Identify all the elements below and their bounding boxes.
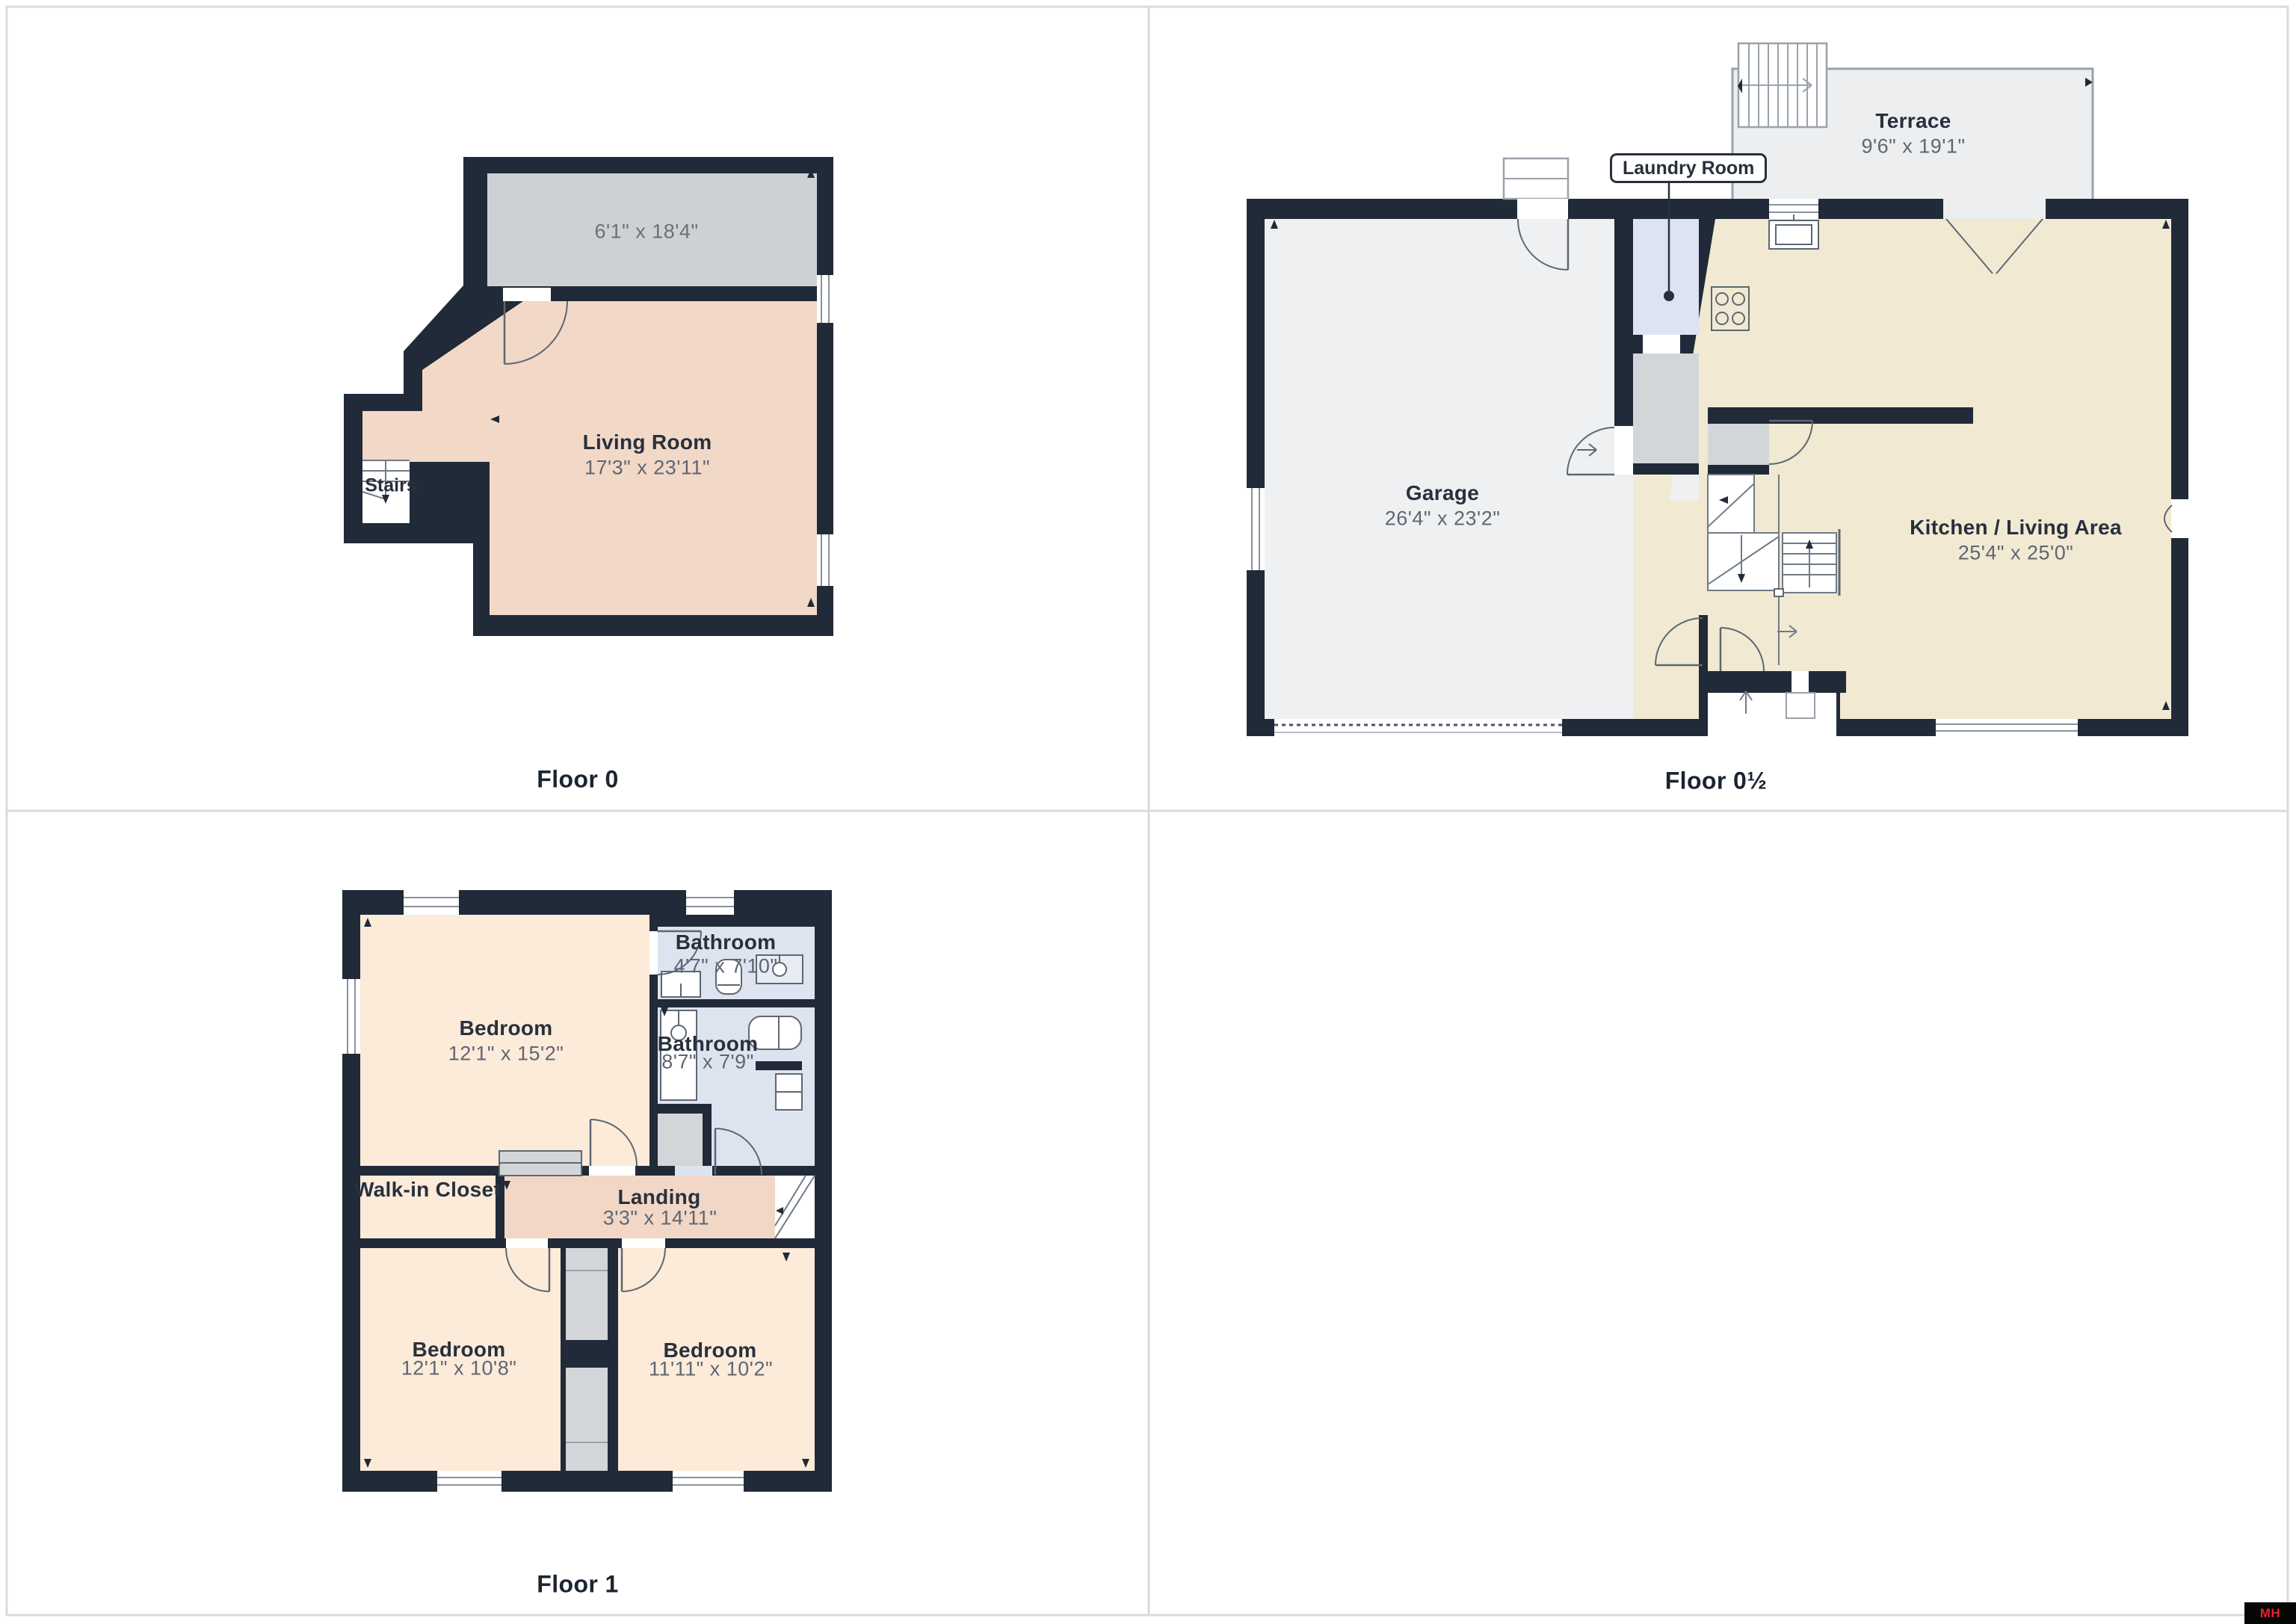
terrace-dims: 9'6" x 19'1" (1861, 135, 1965, 158)
kitchen-lower-left-floor (1633, 501, 1699, 719)
garage-window (1247, 488, 1265, 570)
shaft-divider-wall (561, 1340, 618, 1368)
kitchen-living-name: Kitchen / Living Area (1910, 516, 2122, 540)
storage-floor (658, 1114, 703, 1166)
laundry-room-callout: Laundry Room (1610, 153, 1767, 183)
bedroom3-dims: 11'11" x 10'2" (649, 1358, 773, 1381)
garage-name: Garage (1406, 481, 1479, 505)
bathroom1-dims: 4'7" x 7'10" (673, 955, 777, 978)
vestibule2-bottom-wall (1708, 465, 1769, 475)
vestibule2-floor (1708, 424, 1769, 465)
landing-name: Landing (618, 1185, 701, 1209)
stove-icon (1712, 287, 1749, 330)
floor0half-title: Floor 0½ (1665, 768, 1768, 795)
garage-door (1274, 719, 1562, 736)
wardrobe-cabinet (499, 1151, 581, 1176)
living-room-dims: 17'3" x 23'11" (584, 457, 710, 480)
vestibule-floor (1633, 353, 1699, 463)
floor1-title: Floor 1 (537, 1571, 618, 1599)
landing-dims: 3'3" x 14'11" (603, 1207, 717, 1230)
bedroom1-name: Bedroom (460, 1016, 553, 1040)
laundry-floor (1633, 219, 1699, 335)
bedroom2-dims: 12'1" x 10'8" (401, 1357, 517, 1380)
floor1-stair-void (775, 1176, 815, 1238)
terrace-stairs (1738, 43, 1827, 127)
floor0half-plan (1247, 43, 2188, 736)
laundry-door-gap (1643, 335, 1680, 353)
floorplan-drawing (0, 0, 2296, 1624)
kitchen-living-dims: 25'4" x 25'0" (1958, 542, 2074, 565)
bathroom2-lobby-floor (712, 1104, 815, 1166)
living-room-name: Living Room (583, 430, 712, 454)
terrace-name: Terrace (1875, 109, 1951, 133)
kitchen-interior-wall (1708, 407, 1973, 424)
walkin-closet-name: Walk-in Closet (354, 1178, 501, 1202)
mls-logo: MH MLS (2244, 1602, 2296, 1624)
bathroom1-name: Bathroom (676, 930, 777, 954)
bedroom1-floor (360, 915, 649, 1166)
floor0-plan (344, 157, 833, 636)
bathroom2-dims: 8'7" x 7'9" (661, 1051, 754, 1074)
floor0-title: Floor 0 (537, 766, 618, 794)
floorplan-page: 6'1" x 18'4" Living Room 17'3" x 23'11" … (0, 0, 2296, 1624)
garage-dims: 26'4" x 23'2" (1385, 507, 1501, 531)
stairs-label: Stairs (365, 475, 416, 497)
floor0-grayroom-dims: 6'1" x 18'4" (594, 220, 698, 244)
vestibule-bottom-wall (1633, 463, 1699, 475)
bedroom1-dims: 12'1" x 15'2" (448, 1043, 564, 1066)
kitchen-bottom-window (1936, 719, 2078, 736)
